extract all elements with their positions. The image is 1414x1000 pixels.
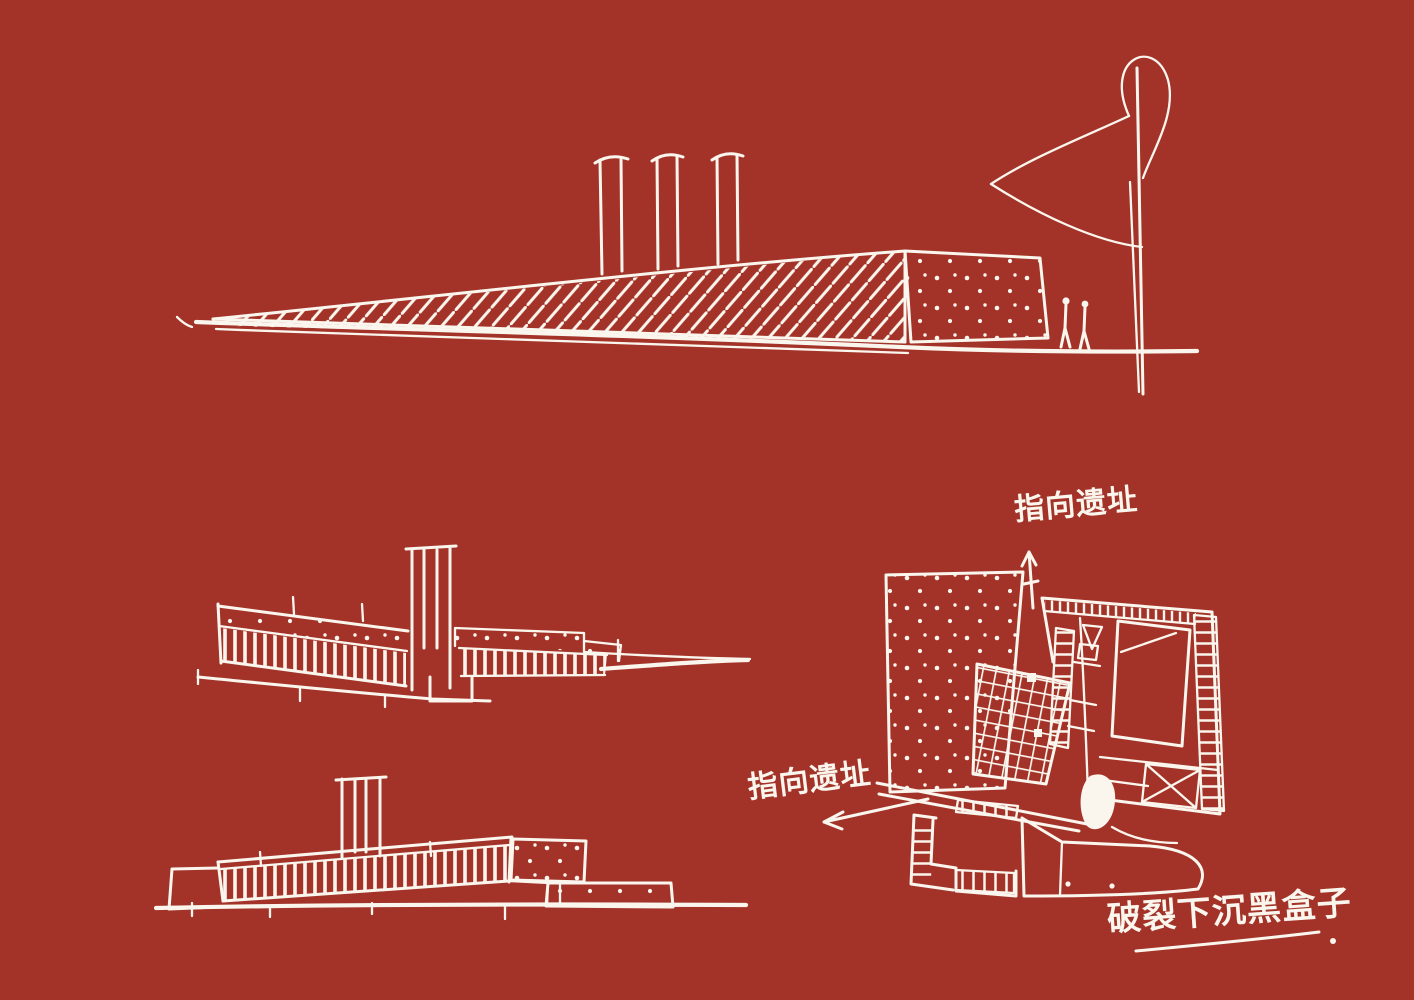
elevation-upper-right-wing (455, 628, 750, 676)
building-end-wall (905, 251, 1048, 342)
perspective-sketch (177, 57, 1197, 394)
chimney-1 (595, 157, 628, 274)
sketch-canvas: 指向遗址 指向遗址 破裂下沉黑盒子 (0, 0, 1414, 1000)
chimney-2 (652, 155, 683, 269)
elevation-sketch-lower (156, 777, 746, 919)
building-roof-wedge (213, 251, 905, 342)
elevation-lower-ground (156, 903, 746, 919)
elevation-sketch-upper (198, 546, 750, 707)
plan-black-box (1081, 774, 1116, 829)
elevation-upper-chimney (406, 546, 472, 701)
left-low-block (169, 868, 218, 909)
plan-inner-hall (1112, 621, 1190, 746)
sketch-drawing (0, 0, 1414, 1000)
plan-x-box (1142, 764, 1200, 808)
elevation-lower-chimney (336, 777, 386, 858)
up-arrow (1022, 552, 1038, 608)
plan-lower-left-wing (911, 800, 1018, 896)
people-figures (1061, 297, 1089, 349)
elevation-upper-left-wing (218, 597, 408, 686)
chimney-3 (712, 154, 743, 264)
chimneys (595, 154, 743, 274)
elevation-lower-dotted-blocks (509, 839, 673, 907)
plan-lower-block (1022, 818, 1202, 896)
